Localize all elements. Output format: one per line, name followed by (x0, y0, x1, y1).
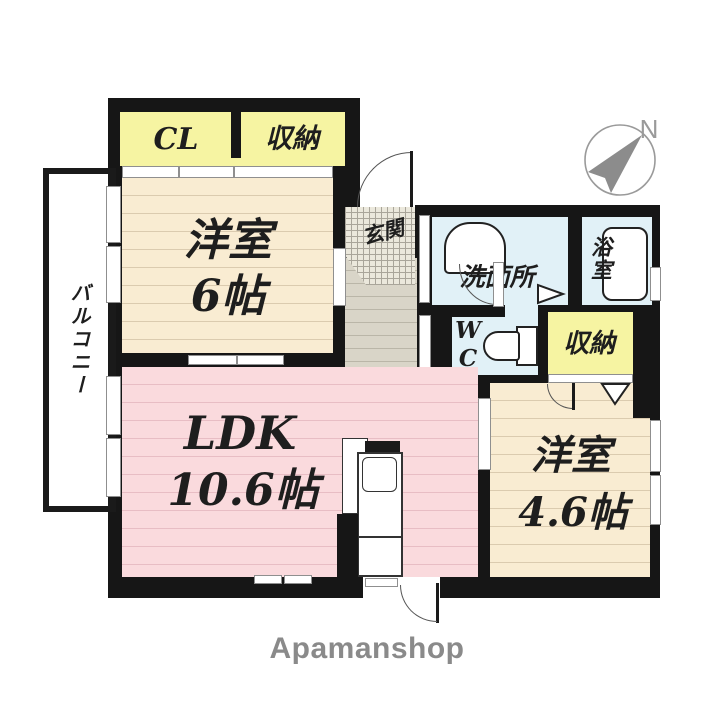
toilet-bowl-icon (483, 331, 520, 361)
ldk-window-2 (106, 438, 121, 497)
bedroom6-ldk-sliding-door (188, 355, 284, 365)
ldk-bottom-vent-2 (284, 575, 312, 584)
ldk-exit-door-arc (400, 585, 437, 622)
hall-storage-label: 収納 (563, 331, 615, 357)
closet-cl-label: CL (154, 125, 199, 155)
ldk-bedroom46-door-panel (478, 398, 491, 470)
closet-divider-wall (231, 112, 241, 158)
ldk-window-1 (106, 376, 121, 435)
bedroom6-window-1 (106, 186, 121, 243)
bedroom-6-label: 洋室 (184, 219, 272, 263)
ldk-size: 10.6帖 (167, 469, 318, 513)
wc-door-panel (419, 315, 431, 373)
closet-top-label: 収納 (265, 126, 319, 153)
folding-door-marker-icon (600, 382, 631, 407)
balcony-label: バルコニー (69, 283, 89, 398)
brand-logo: Apamanshop (269, 632, 464, 666)
bedroom-46-size: 4.6帖 (518, 493, 628, 533)
bathroom-window (650, 267, 661, 301)
bedroom46-corner-wall (633, 378, 653, 418)
bedroom-6-size: 6帖 (191, 275, 266, 319)
compass-icon: N (575, 105, 675, 210)
bedroom-46 (490, 383, 650, 577)
bedroom-46-label: 洋室 (531, 436, 611, 476)
bedroom6-door-panel (333, 248, 346, 306)
bathroom-label: 浴室 (591, 236, 612, 282)
entrance-door-arc (357, 152, 412, 207)
ldk-label: LDK (184, 410, 296, 456)
washroom-door-leaf (493, 262, 504, 307)
ldk-exit-sill (365, 578, 398, 587)
bedroom46-window-2 (650, 475, 661, 525)
closet-sliding-door (122, 166, 333, 178)
kitchen-wall-stub (337, 514, 358, 577)
floorplan-canvas: N バルコニー CL 収納 洋室 6帖 玄関 洗面所 浴室 (0, 0, 720, 720)
bedroom46-closet-door-leaf (572, 383, 575, 410)
bedroom6-window-2 (106, 246, 121, 303)
bedroom46-window-1 (650, 420, 661, 472)
bath-door-marker-icon (536, 283, 566, 305)
compass-north-label: N (640, 114, 659, 144)
kitchen-sink-icon (362, 457, 397, 492)
entrance-door-leaf (410, 151, 413, 207)
ldk-bottom-vent-1 (254, 575, 282, 584)
washroom-door-panel (419, 215, 430, 303)
kitchen-counter-divider (357, 536, 403, 538)
wc-label: WC (457, 317, 480, 373)
